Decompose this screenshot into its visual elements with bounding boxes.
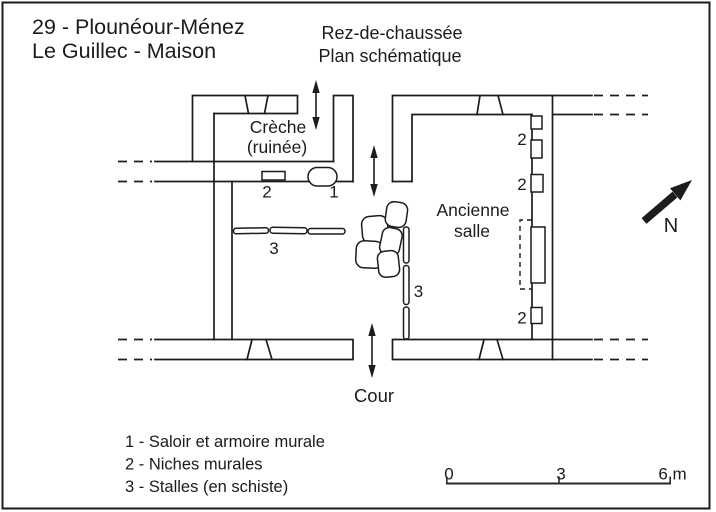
wall-segment — [155, 340, 353, 360]
scale-label-6m: 6 m — [658, 465, 686, 484]
wall-niche — [262, 172, 285, 181]
wall-segment — [393, 96, 593, 182]
stone — [377, 250, 401, 278]
east-wall-niches — [531, 116, 545, 324]
plan-type-label: Plan schématique — [318, 46, 461, 66]
plan-level-label: Rez-de-chaussée — [321, 23, 462, 43]
stall-slab — [308, 229, 345, 235]
stall-slab — [404, 266, 410, 305]
marker-niche-east-middle: 2 — [517, 175, 526, 194]
stall-slab — [404, 227, 410, 263]
room-label-salle-line1: Ancienne — [437, 200, 510, 220]
legend-item-2: 2 - Niches murales — [125, 456, 263, 474]
stone-cluster — [355, 201, 408, 278]
left-building-walls — [118, 96, 353, 360]
stall-slab — [404, 307, 410, 339]
room-label-creche-line2: (ruinée) — [247, 137, 307, 157]
stall-slab — [233, 228, 268, 234]
door-arrow-creche — [312, 80, 319, 130]
window-splay — [245, 96, 268, 114]
legend: 1 - Saloir et armoire murale 2 - Niches … — [125, 433, 325, 496]
sheet-title-line1: 29 - Plounéour-Ménez — [32, 15, 245, 39]
floor-plan-sheet: N 0 3 6 m 29 - Plounéour-Ménez Le Guille… — [0, 0, 716, 512]
room-label-salle-line2: salle — [454, 221, 490, 241]
marker-niche-east-bottom: 2 — [517, 309, 526, 328]
stone — [384, 201, 408, 229]
plan-drawing: N 0 3 6 m 29 - Plounéour-Ménez Le Guille… — [0, 0, 716, 512]
wall-niche — [531, 140, 542, 158]
scale-bar: 0 3 6 m — [444, 465, 686, 484]
north-label: N — [664, 215, 678, 237]
stall-column — [404, 227, 410, 339]
marker-stalls-column: 3 — [414, 282, 423, 301]
room-label-creche-line1: Crèche — [250, 117, 306, 137]
wall-cupboard — [531, 227, 545, 283]
courtyard-label: Cour — [354, 385, 394, 406]
wall-continuation-dashed — [118, 340, 152, 360]
stall-slab — [270, 227, 307, 234]
window-splay — [477, 96, 503, 115]
wall-niche — [531, 116, 542, 129]
wall-segment — [393, 340, 593, 360]
wall-segment — [334, 96, 354, 182]
marker-saloir: 1 — [329, 183, 338, 202]
door-arrow-passage — [370, 145, 377, 197]
wall-niche — [531, 175, 543, 193]
dashed-recess-outline — [520, 220, 532, 289]
wall-niche — [531, 308, 542, 324]
scale-label-0: 0 — [444, 465, 453, 484]
window-splay — [479, 340, 503, 360]
marker-niche-east-top: 2 — [517, 130, 526, 149]
wall-continuation-dashed — [118, 162, 152, 182]
window-splay — [247, 340, 272, 360]
marker-niche-creche-wall: 2 — [262, 183, 271, 202]
door-arrow-courtyard — [368, 323, 375, 378]
legend-item-3: 3 - Stalles (en schiste) — [125, 478, 288, 496]
sheet-title-line2: Le Guillec - Maison — [32, 39, 216, 63]
wall-continuation-dashed — [594, 340, 648, 360]
legend-item-1: 1 - Saloir et armoire murale — [125, 433, 325, 451]
marker-stalls-row: 3 — [269, 239, 278, 258]
stall-row — [233, 227, 345, 234]
north-arrow: N — [644, 180, 692, 237]
wall-segment — [412, 115, 532, 182]
scale-label-3: 3 — [556, 465, 565, 484]
